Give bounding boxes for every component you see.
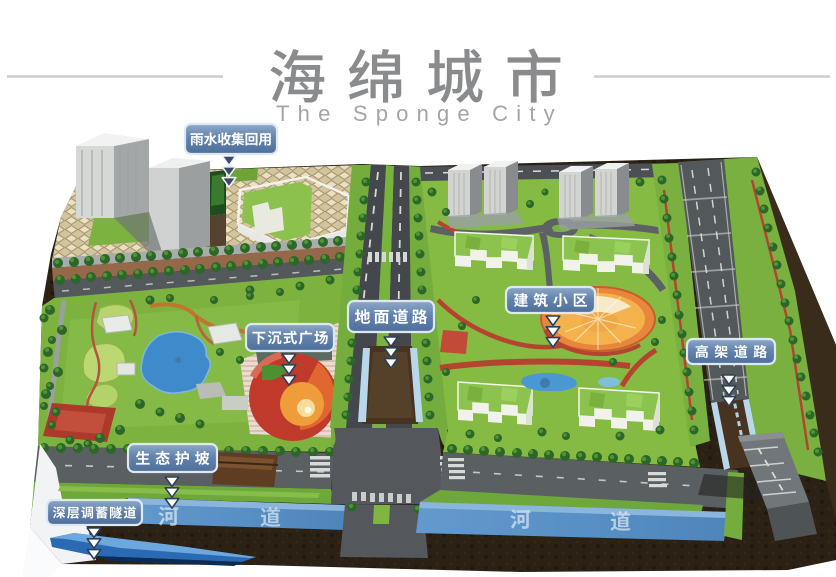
svg-text:The Sponge City: The Sponge City [276,101,563,126]
